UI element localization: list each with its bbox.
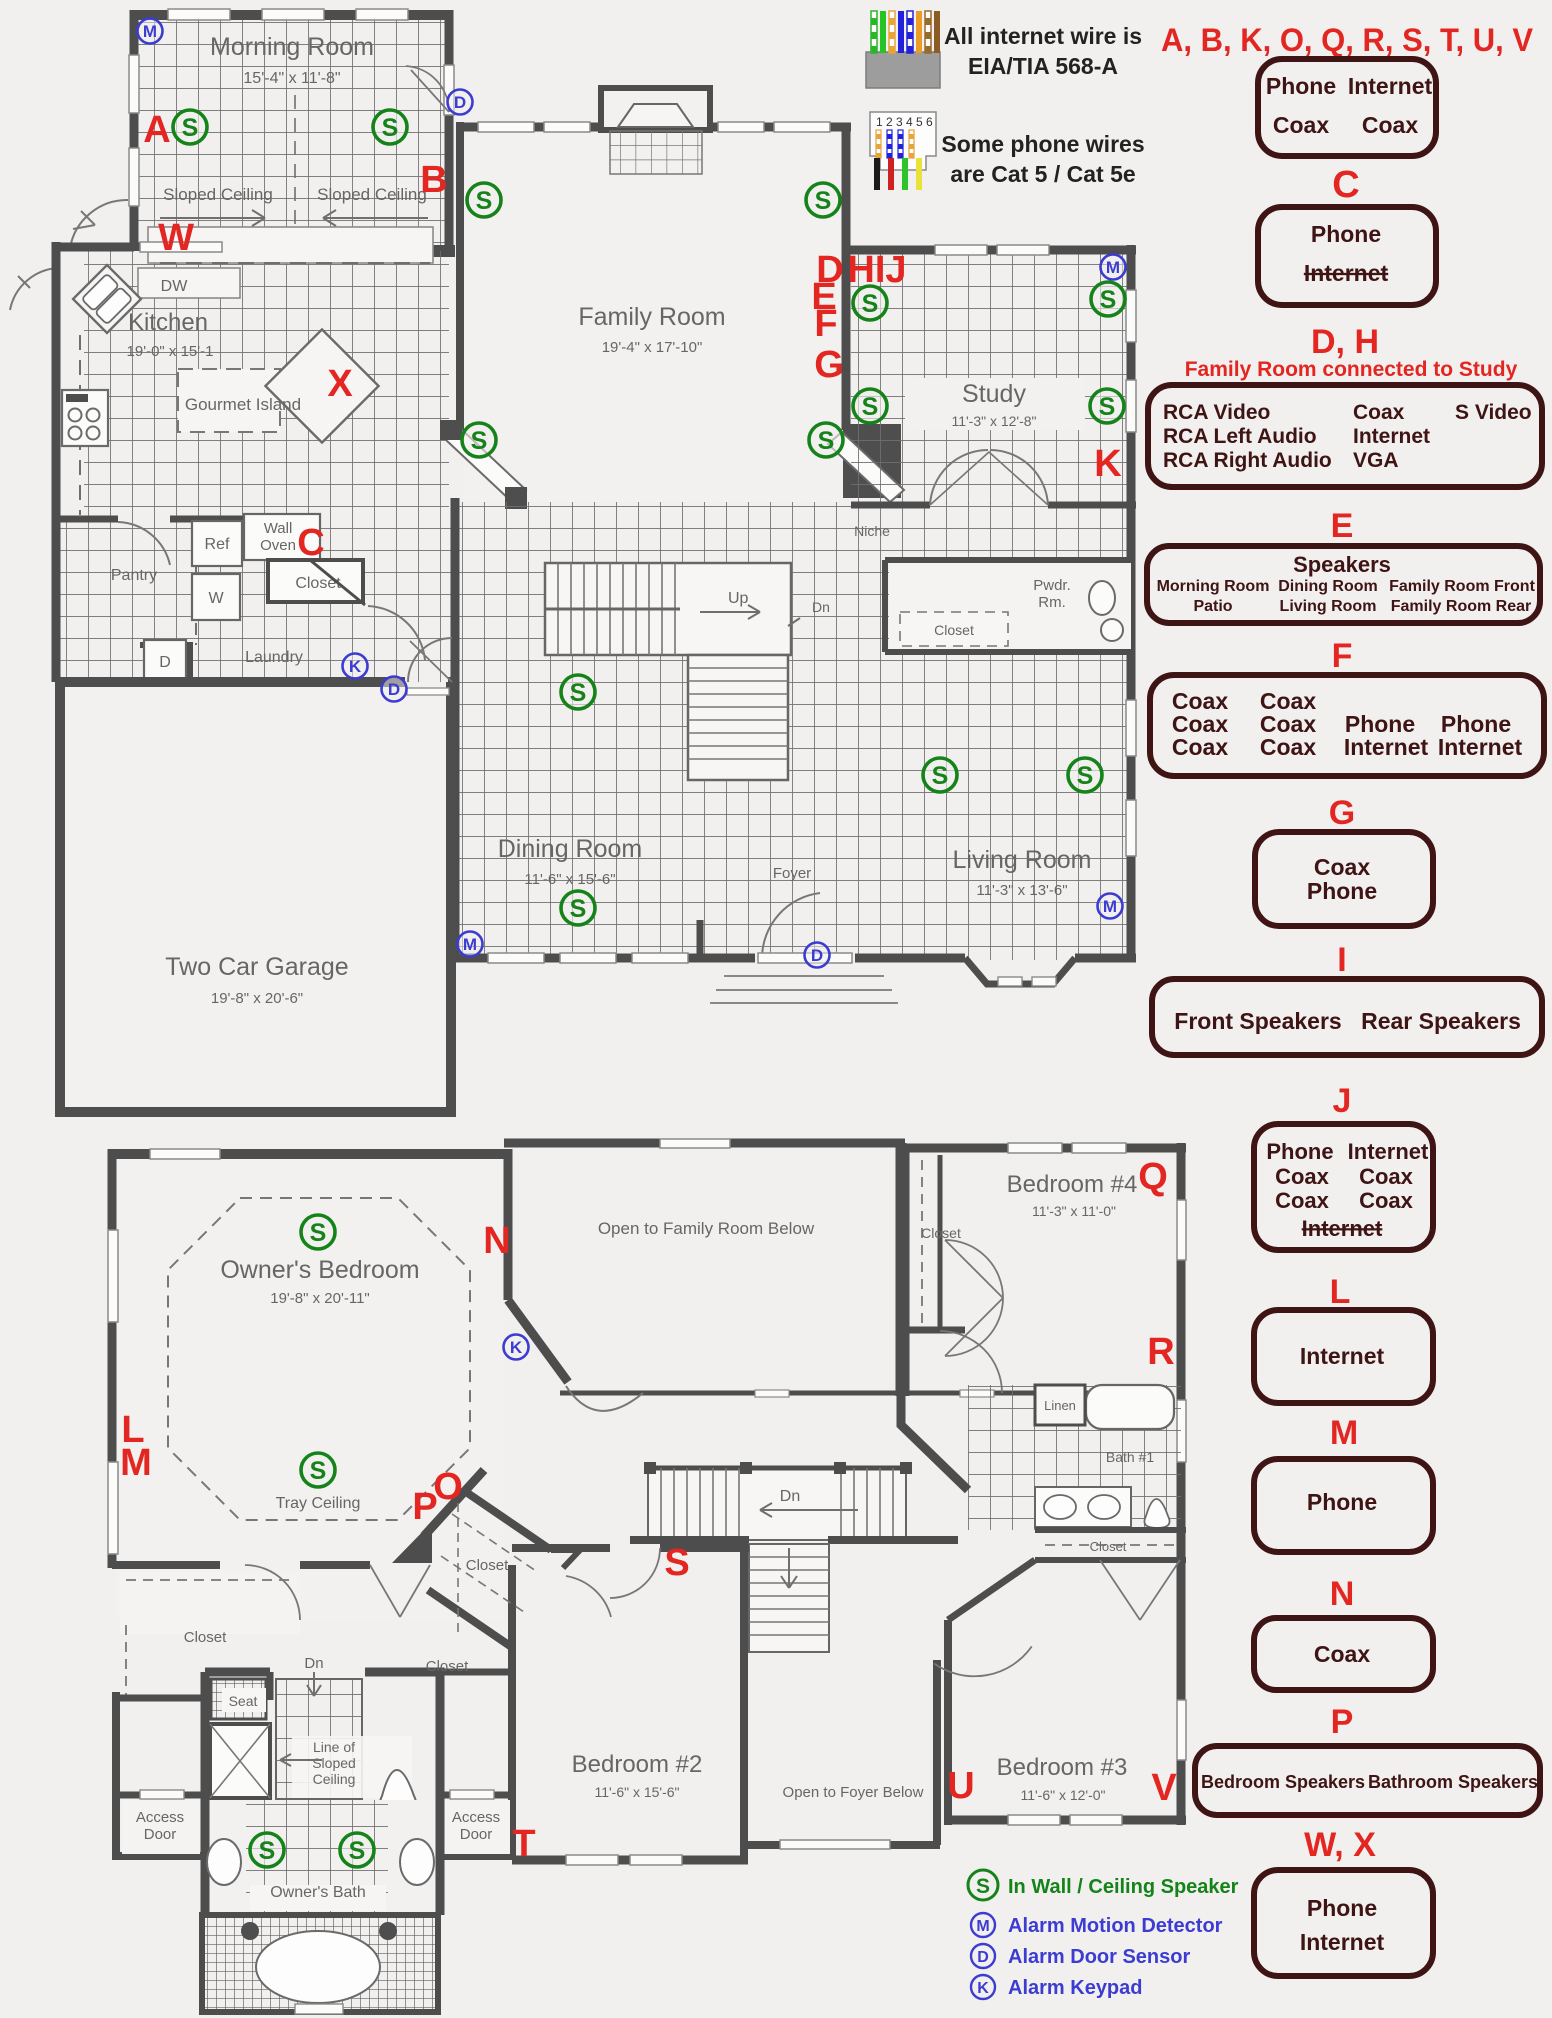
svg-text:Dn: Dn [812,599,830,615]
svg-text:Coax: Coax [1275,1164,1330,1189]
svg-text:S: S [382,114,399,142]
svg-text:M: M [463,935,477,954]
svg-text:Closet: Closet [921,1225,961,1241]
svg-text:Bath #1: Bath #1 [1106,1449,1154,1465]
svg-text:Ref: Ref [205,536,230,553]
svg-text:S: S [862,393,879,421]
svg-text:Phone: Phone [1307,1489,1377,1515]
svg-text:R: R [1147,1331,1174,1373]
svg-text:S: S [310,1457,327,1485]
svg-text:Rm.: Rm. [1038,594,1066,611]
svg-text:S Video: S Video [1455,401,1532,424]
svg-text:Internet: Internet [1353,425,1430,448]
svg-text:All internet wire is: All internet wire is [944,23,1142,49]
svg-text:Morning Room: Morning Room [210,33,374,61]
svg-text:S: S [182,114,199,142]
svg-text:F: F [814,303,837,345]
svg-text:Ceiling: Ceiling [313,1771,356,1787]
svg-text:Phone: Phone [1307,1895,1377,1921]
svg-text:Bedroom #4: Bedroom #4 [1007,1171,1138,1198]
svg-text:19'-4" x 17'-10": 19'-4" x 17'-10" [602,339,703,356]
svg-text:Door: Door [460,1826,493,1843]
svg-text:Access: Access [136,1809,184,1826]
svg-text:RCA Video: RCA Video [1163,401,1270,424]
svg-text:Owner's Bedroom: Owner's Bedroom [220,1256,419,1284]
svg-text:S: S [932,762,949,790]
svg-text:HIJ: HIJ [847,249,906,291]
svg-text:N: N [483,1220,510,1262]
svg-text:Laundry: Laundry [245,649,303,666]
svg-text:Phone: Phone [1307,878,1377,904]
svg-text:Owner's Bath: Owner's Bath [270,1884,366,1901]
svg-text:Coax: Coax [1172,734,1228,760]
svg-text:Open to Family Room Below: Open to Family Room Below [598,1219,815,1238]
svg-text:K: K [349,657,362,676]
svg-text:S: S [349,1837,366,1865]
svg-text:W: W [158,217,194,259]
svg-text:S: S [310,1219,327,1247]
svg-text:Speakers: Speakers [1293,552,1391,577]
svg-text:Dining Room: Dining Room [1278,578,1378,595]
svg-text:Q: Q [1138,1156,1168,1198]
svg-text:Closet: Closet [934,622,974,638]
svg-text:L: L [1330,1273,1351,1311]
svg-text:RCA Right Audio: RCA Right Audio [1163,449,1332,472]
svg-text:K: K [1094,443,1122,485]
svg-text:Linen: Linen [1044,1398,1076,1413]
svg-text:S: S [1099,393,1116,421]
svg-text:Sloped Ceiling: Sloped Ceiling [163,185,273,204]
svg-text:Dining Room: Dining Room [498,835,643,863]
svg-text:S: S [664,1542,689,1584]
svg-text:Family Room connected to Study: Family Room connected to Study [1185,358,1518,381]
svg-text:DW: DW [161,278,189,295]
svg-text:E: E [1331,507,1354,545]
svg-text:EIA/TIA 568-A: EIA/TIA 568-A [968,53,1118,79]
svg-text:Gourmet Island: Gourmet Island [185,395,301,414]
svg-text:Closet: Closet [426,1658,469,1675]
svg-text:19'-0" x 15'-1: 19'-0" x 15'-1 [127,343,214,360]
svg-text:N: N [1330,1575,1355,1613]
svg-text:T: T [512,1823,535,1865]
svg-text:Internet: Internet [1348,1139,1429,1164]
svg-text:P: P [1331,1703,1354,1741]
svg-text:Pwdr.: Pwdr. [1033,577,1071,594]
svg-text:Closet: Closet [466,1557,509,1574]
svg-text:Sloped: Sloped [312,1755,356,1771]
svg-text:Sloped Ceiling: Sloped Ceiling [317,185,427,204]
svg-text:Internet: Internet [1300,1343,1385,1369]
svg-text:Kitchen: Kitchen [128,309,208,336]
svg-text:Internet: Internet [1302,1216,1383,1241]
svg-text:Door: Door [144,1826,177,1843]
svg-text:D: D [159,654,171,671]
svg-text:Phone: Phone [1266,1139,1333,1164]
svg-text:D, H: D, H [1311,323,1379,361]
svg-text:S: S [570,895,587,923]
svg-text:J: J [1333,1082,1352,1120]
svg-text:19'-8" x 20'-11": 19'-8" x 20'-11" [270,1290,370,1307]
svg-text:Pantry: Pantry [111,567,157,584]
svg-text:S: S [976,1875,990,1898]
svg-text:Coax: Coax [1362,112,1418,138]
svg-text:Wall: Wall [264,520,293,537]
svg-text:Up: Up [728,590,749,607]
svg-text:D: D [977,1949,989,1966]
svg-text:Internet: Internet [1304,260,1389,286]
svg-text:Internet: Internet [1348,73,1433,99]
svg-text:Living Room: Living Room [953,846,1092,874]
svg-text:Coax: Coax [1359,1188,1414,1213]
svg-text:D: D [454,93,466,112]
svg-text:Dn: Dn [304,1655,323,1672]
svg-text:Open to Foyer Below: Open to Foyer Below [783,1784,924,1801]
svg-text:Morning Room: Morning Room [1157,578,1270,595]
svg-text:Coax: Coax [1275,1188,1330,1213]
svg-text:F: F [1332,637,1353,675]
svg-text:D: D [388,680,400,699]
svg-text:11'-6" x 15'-6": 11'-6" x 15'-6" [524,871,615,888]
svg-text:11'-3" x 12'-8": 11'-3" x 12'-8" [951,413,1036,429]
svg-text:Bedroom #3: Bedroom #3 [997,1754,1128,1781]
svg-text:S: S [1077,762,1094,790]
svg-text:K: K [510,1338,523,1357]
svg-text:S: S [570,679,587,707]
svg-text:15'-4" x 11'-8": 15'-4" x 11'-8" [243,70,340,87]
svg-text:W, X: W, X [1304,1826,1376,1864]
svg-text:S: S [1100,286,1117,314]
svg-text:C: C [297,522,324,564]
svg-text:11'-3" x 13'-6": 11'-3" x 13'-6" [976,882,1067,899]
svg-text:S: S [471,427,488,455]
svg-text:S: S [259,1837,276,1865]
svg-text:I: I [1337,941,1346,979]
svg-text:Niche: Niche [854,523,890,539]
svg-text:Bathroom Speakers: Bathroom Speakers [1368,1772,1538,1792]
svg-text:Living Room: Living Room [1280,598,1377,615]
svg-text:P: P [412,1486,437,1528]
svg-text:Family Room Front: Family Room Front [1389,578,1535,595]
svg-text:Line of: Line of [313,1739,355,1755]
svg-text:Phone: Phone [1311,221,1381,247]
svg-text:Coax: Coax [1359,1164,1414,1189]
svg-text:S: S [818,427,835,455]
svg-text:X: X [327,363,353,405]
svg-text:Two Car Garage: Two Car Garage [165,953,348,981]
svg-text:Closet: Closet [1090,1539,1127,1554]
svg-text:Family Room: Family Room [578,303,725,331]
svg-text:Alarm Motion Detector: Alarm Motion Detector [1008,1915,1223,1937]
svg-text:Coax: Coax [1353,401,1405,424]
svg-text:Coax: Coax [1314,854,1370,880]
svg-text:Closet: Closet [184,1629,227,1646]
svg-text:M: M [143,22,157,41]
svg-text:Patio: Patio [1193,598,1232,615]
svg-text:M: M [1330,1414,1358,1452]
svg-text:19'-8" x 20'-6": 19'-8" x 20'-6" [211,990,303,1007]
svg-text:G: G [814,344,844,386]
svg-text:G: G [1329,794,1355,832]
svg-text:D: D [811,946,823,965]
svg-text:Oven: Oven [260,537,296,554]
svg-text:Seat: Seat [229,1693,258,1709]
svg-text:C: C [1332,164,1359,206]
svg-text:Coax: Coax [1273,112,1329,138]
svg-text:Alarm Keypad: Alarm Keypad [1008,1977,1143,1999]
svg-text:11'-6" x 15'-6": 11'-6" x 15'-6" [594,1784,679,1800]
svg-text:Bedroom #2: Bedroom #2 [572,1751,703,1778]
svg-text:Closet: Closet [295,575,341,592]
svg-text:A: A [143,109,170,151]
svg-text:Internet: Internet [1438,734,1523,760]
svg-text:M: M [120,1442,152,1484]
svg-text:Family Room Rear: Family Room Rear [1391,598,1531,615]
svg-text:Alarm Door Sensor: Alarm Door Sensor [1008,1946,1190,1968]
svg-text:Coax: Coax [1314,1641,1370,1667]
svg-text:Internet: Internet [1344,734,1429,760]
svg-text:Coax: Coax [1260,734,1316,760]
svg-text:Phone: Phone [1266,73,1336,99]
svg-text:Rear Speakers: Rear Speakers [1361,1008,1521,1034]
svg-text:RCA Left Audio: RCA Left Audio [1163,425,1317,448]
svg-text:S: S [815,187,832,215]
svg-text:Some phone wires: Some phone wires [941,131,1144,157]
svg-text:Access: Access [452,1809,500,1826]
svg-text:Front Speakers: Front Speakers [1174,1008,1341,1034]
svg-text:11'-3" x 11'-0": 11'-3" x 11'-0" [1032,1203,1116,1219]
svg-text:are Cat 5 / Cat 5e: are Cat 5 / Cat 5e [950,161,1135,187]
svg-text:VGA: VGA [1353,449,1399,472]
svg-text:Study: Study [962,380,1026,408]
svg-text:M: M [976,1918,989,1935]
svg-text:S: S [476,187,493,215]
svg-text:M: M [1106,258,1120,277]
svg-text:V: V [1151,1767,1177,1809]
svg-text:S: S [862,290,879,318]
svg-text:Bedroom Speakers: Bedroom Speakers [1201,1772,1365,1792]
svg-text:11'-6" x 12'-0": 11'-6" x 12'-0" [1020,1787,1105,1803]
svg-text:M: M [1103,897,1117,916]
svg-text:Dn: Dn [780,1488,800,1505]
svg-text:W: W [208,590,224,607]
svg-text:Tray Ceiling: Tray Ceiling [276,1495,361,1512]
svg-text:Internet: Internet [1300,1929,1385,1955]
svg-text:A, B, K, O, Q, R, S, T, U, V: A, B, K, O, Q, R, S, T, U, V [1161,22,1534,58]
svg-text:In Wall / Ceiling Speaker: In Wall / Ceiling Speaker [1008,1876,1239,1898]
svg-text:1 2 3 4 5 6: 1 2 3 4 5 6 [876,115,933,129]
svg-text:Foyer: Foyer [773,865,811,882]
svg-text:U: U [947,1765,974,1807]
svg-text:K: K [977,1980,989,1997]
svg-text:B: B [420,159,447,201]
